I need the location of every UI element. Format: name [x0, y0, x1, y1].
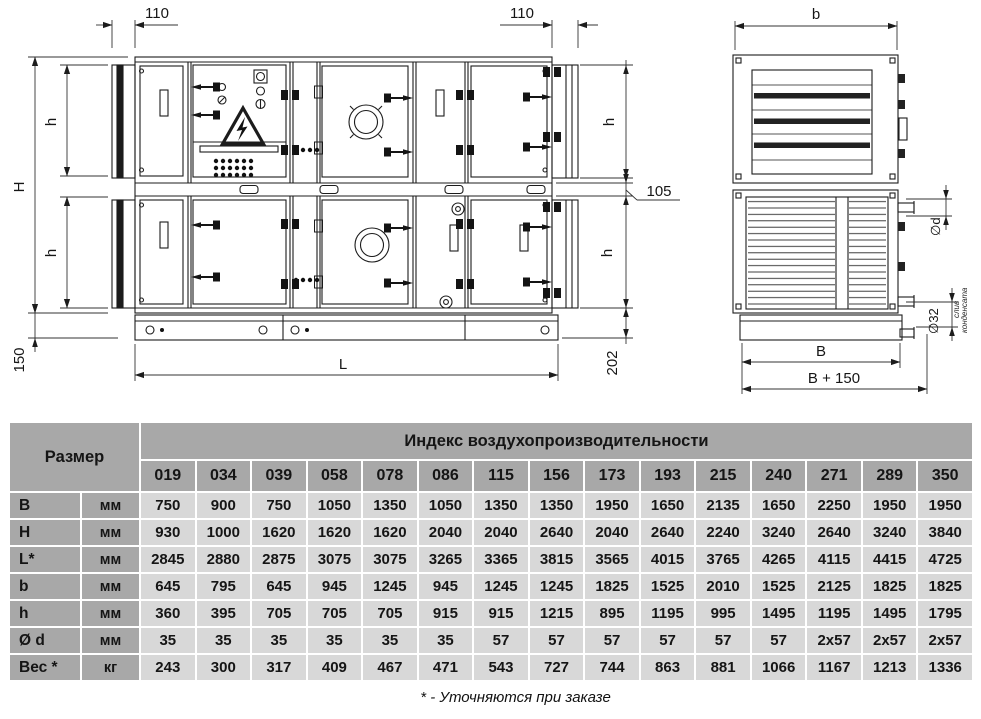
corner-screws [140, 69, 548, 302]
value-cell: 2x57 [807, 628, 861, 653]
value-cell: 1245 [363, 574, 417, 599]
dim-label-b: b [812, 6, 820, 23]
value-cell: 945 [308, 574, 362, 599]
unit-cell: мм [82, 493, 139, 518]
value-cell: 2250 [807, 493, 861, 518]
vent-slot [200, 146, 278, 152]
table-row: Hмм9301000162016201620204020402640204026… [10, 520, 972, 545]
side-base-frame [740, 315, 902, 340]
value-cell: 1050 [308, 493, 362, 518]
value-cell: 1620 [252, 520, 306, 545]
value-cell: 57 [530, 628, 584, 653]
datasheet-page: 110 110 H h h 150 L 202 105 h h b B B + … [0, 0, 981, 719]
value-cell: 1950 [863, 493, 917, 518]
value-cell: 1215 [530, 601, 584, 626]
value-cell: 2875 [252, 547, 306, 572]
value-cell: 1213 [863, 655, 917, 680]
row-label-cell: B [10, 493, 80, 518]
value-cell: 744 [585, 655, 639, 680]
dim-label-h-lower-right: h [599, 249, 616, 257]
value-cell: 2640 [807, 520, 861, 545]
value-cell: 3075 [363, 547, 417, 572]
value-cell: 995 [696, 601, 750, 626]
value-cell: 1050 [419, 493, 473, 518]
unit-cell: кг [82, 655, 139, 680]
value-cell: 57 [585, 628, 639, 653]
table-row: bмм6457956459451245945124512451825152520… [10, 574, 972, 599]
value-cell: 57 [696, 628, 750, 653]
index-col-header: 193 [641, 461, 695, 491]
value-cell: 1350 [363, 493, 417, 518]
base-frame [135, 315, 558, 340]
value-cell: 1195 [641, 601, 695, 626]
value-cell: 895 [585, 601, 639, 626]
value-cell: 1495 [752, 601, 806, 626]
value-cell: 2040 [585, 520, 639, 545]
value-cell: 930 [141, 520, 195, 545]
value-cell: 1620 [308, 520, 362, 545]
value-cell: 727 [530, 655, 584, 680]
value-cell: 1950 [918, 493, 972, 518]
index-col-header: 173 [585, 461, 639, 491]
value-cell: 645 [141, 574, 195, 599]
ventilation-grille [214, 159, 253, 177]
value-cell: 543 [474, 655, 528, 680]
dim-label-H: H [11, 182, 28, 193]
index-col-header: 240 [752, 461, 806, 491]
value-cell: 705 [252, 601, 306, 626]
size-header-cell: Размер [10, 423, 139, 491]
value-cell: 2040 [419, 520, 473, 545]
value-cell: 2x57 [863, 628, 917, 653]
value-cell: 705 [363, 601, 417, 626]
value-cell: 2845 [141, 547, 195, 572]
value-cell: 1245 [530, 574, 584, 599]
value-cell: 1336 [918, 655, 972, 680]
dim-label-B150: B + 150 [808, 370, 860, 387]
value-cell: 1650 [641, 493, 695, 518]
dim-label-pipe-d: ∅d [928, 217, 943, 236]
dim-label-h-upper-left: h [43, 118, 60, 126]
value-cell: 1066 [752, 655, 806, 680]
value-cell: 1620 [363, 520, 417, 545]
value-cell: 300 [197, 655, 251, 680]
value-cell: 1825 [585, 574, 639, 599]
technical-drawing: 110 110 H h h 150 L 202 105 h h b B B + … [0, 0, 981, 418]
value-cell: 4725 [918, 547, 972, 572]
unit-cell: мм [82, 574, 139, 599]
frame-clamps [240, 186, 545, 194]
value-cell: 4265 [752, 547, 806, 572]
value-cell: 4015 [641, 547, 695, 572]
dot-vents [294, 148, 319, 282]
dim-label-h-upper-right: h [601, 118, 618, 126]
row-label-cell: Ø d [10, 628, 80, 653]
table-row: hмм3603957057057059159151215895119599514… [10, 601, 972, 626]
value-cell: 881 [696, 655, 750, 680]
value-cell: 57 [474, 628, 528, 653]
table-row: Ø dмм3535353535355757575757572x572x572x5… [10, 628, 972, 653]
dim-label-L: L [339, 356, 347, 373]
index-col-header: 271 [807, 461, 861, 491]
dim-label-110-left: 110 [145, 5, 169, 22]
value-cell: 1167 [807, 655, 861, 680]
value-cell: 395 [197, 601, 251, 626]
front-view [112, 57, 578, 340]
row-label-cell: Вес * [10, 655, 80, 680]
value-cell: 1525 [641, 574, 695, 599]
value-cell: 1495 [863, 601, 917, 626]
table-row: L*мм284528802875307530753265336538153565… [10, 547, 972, 572]
value-cell: 1245 [474, 574, 528, 599]
row-label-cell: L* [10, 547, 80, 572]
heat-exchanger-fins [746, 197, 888, 309]
row-label-cell: h [10, 601, 80, 626]
dim-label-drain-32: ∅32 [926, 308, 941, 334]
index-col-header: 215 [696, 461, 750, 491]
header-row: РазмерИндекс воздухопроизводительности [10, 423, 972, 459]
pipe-fittings [440, 203, 464, 308]
unit-cell: мм [82, 601, 139, 626]
value-cell: 915 [419, 601, 473, 626]
index-col-header: 039 [252, 461, 306, 491]
louver-damper [752, 70, 872, 174]
side-hardware [898, 74, 905, 271]
index-col-header: 350 [918, 461, 972, 491]
value-cell: 3765 [696, 547, 750, 572]
index-col-header: 289 [863, 461, 917, 491]
side-view [733, 55, 914, 340]
dim-label-202: 202 [604, 350, 621, 375]
right-duct-collar [552, 65, 578, 308]
value-cell: 3815 [530, 547, 584, 572]
value-cell: 35 [308, 628, 362, 653]
index-col-header: 058 [308, 461, 362, 491]
value-cell: 2x57 [918, 628, 972, 653]
dim-label-h-lower-left: h [43, 249, 60, 257]
value-cell: 863 [641, 655, 695, 680]
value-cell: 1350 [530, 493, 584, 518]
dim-label-110-right: 110 [510, 5, 534, 22]
index-col-header: 156 [530, 461, 584, 491]
row-label-cell: b [10, 574, 80, 599]
value-cell: 4415 [863, 547, 917, 572]
value-cell: 243 [141, 655, 195, 680]
table-row: Вес *кг243300317409467471543727744863881… [10, 655, 972, 680]
value-cell: 409 [308, 655, 362, 680]
dim-label-B: B [816, 343, 826, 360]
value-cell: 1825 [863, 574, 917, 599]
value-cell: 1650 [752, 493, 806, 518]
value-cell: 3265 [419, 547, 473, 572]
value-cell: 2135 [696, 493, 750, 518]
unit-cell: мм [82, 628, 139, 653]
value-cell: 3240 [863, 520, 917, 545]
index-col-header: 019 [141, 461, 195, 491]
value-cell: 3075 [308, 547, 362, 572]
value-cell: 2010 [696, 574, 750, 599]
value-cell: 4115 [807, 547, 861, 572]
value-cell: 35 [363, 628, 417, 653]
value-cell: 1795 [918, 601, 972, 626]
unit-cell: мм [82, 547, 139, 572]
value-cell: 2240 [696, 520, 750, 545]
value-cell: 3365 [474, 547, 528, 572]
value-cell: 467 [363, 655, 417, 680]
value-cell: 3840 [918, 520, 972, 545]
index-row: 0190340390580780861151561731932152402712… [10, 461, 972, 491]
left-duct-collar [112, 65, 135, 308]
value-cell: 360 [141, 601, 195, 626]
value-cell: 1350 [474, 493, 528, 518]
index-col-header: 086 [419, 461, 473, 491]
value-cell: 750 [141, 493, 195, 518]
value-cell: 645 [252, 574, 306, 599]
value-cell: 2040 [474, 520, 528, 545]
value-cell: 35 [197, 628, 251, 653]
value-cell: 1195 [807, 601, 861, 626]
index-col-header: 115 [474, 461, 528, 491]
value-cell: 471 [419, 655, 473, 680]
index-col-header: 078 [363, 461, 417, 491]
value-cell: 57 [752, 628, 806, 653]
value-cell: 915 [474, 601, 528, 626]
warning-triangle-icon [223, 108, 264, 144]
value-cell: 1825 [918, 574, 972, 599]
value-cell: 1950 [585, 493, 639, 518]
value-cell: 2125 [807, 574, 861, 599]
unit-cell: мм [82, 520, 139, 545]
drain-caption-line2: конденсата [960, 287, 969, 333]
index-header-cell: Индекс воздухопроизводительности [141, 423, 972, 459]
value-cell: 900 [197, 493, 251, 518]
dim-label-105: 105 [646, 183, 671, 200]
value-cell: 57 [641, 628, 695, 653]
heat-medium-pipe [898, 201, 914, 214]
table-row: Bмм7509007501050135010501350135019501650… [10, 493, 972, 518]
dim-label-150: 150 [11, 347, 28, 372]
value-cell: 795 [197, 574, 251, 599]
row-label-cell: H [10, 520, 80, 545]
value-cell: 3565 [585, 547, 639, 572]
dims-table-grid: РазмерИндекс воздухопроизводительности01… [8, 421, 974, 682]
value-cell: 750 [252, 493, 306, 518]
value-cell: 2880 [197, 547, 251, 572]
value-cell: 317 [252, 655, 306, 680]
value-cell: 3240 [752, 520, 806, 545]
footnote: * - Уточняются при заказе [0, 689, 981, 706]
value-cell: 35 [141, 628, 195, 653]
value-cell: 2640 [641, 520, 695, 545]
value-cell: 705 [308, 601, 362, 626]
value-cell: 35 [419, 628, 473, 653]
dimensions-table: РазмерИндекс воздухопроизводительности01… [8, 421, 974, 682]
value-cell: 2640 [530, 520, 584, 545]
value-cell: 1000 [197, 520, 251, 545]
value-cell: 35 [252, 628, 306, 653]
value-cell: 1525 [752, 574, 806, 599]
index-col-header: 034 [197, 461, 251, 491]
value-cell: 945 [419, 574, 473, 599]
